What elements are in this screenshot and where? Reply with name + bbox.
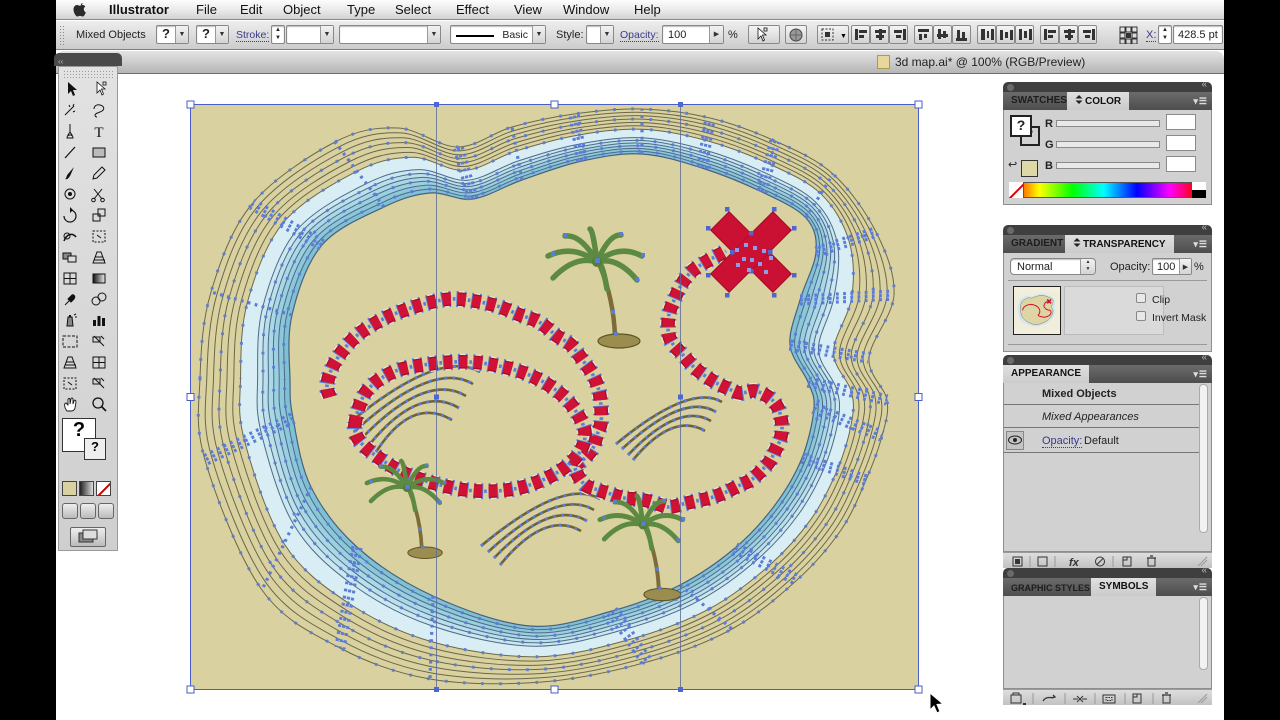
svg-text:▼: ▼ <box>840 33 847 40</box>
svg-text:T: T <box>94 125 103 141</box>
